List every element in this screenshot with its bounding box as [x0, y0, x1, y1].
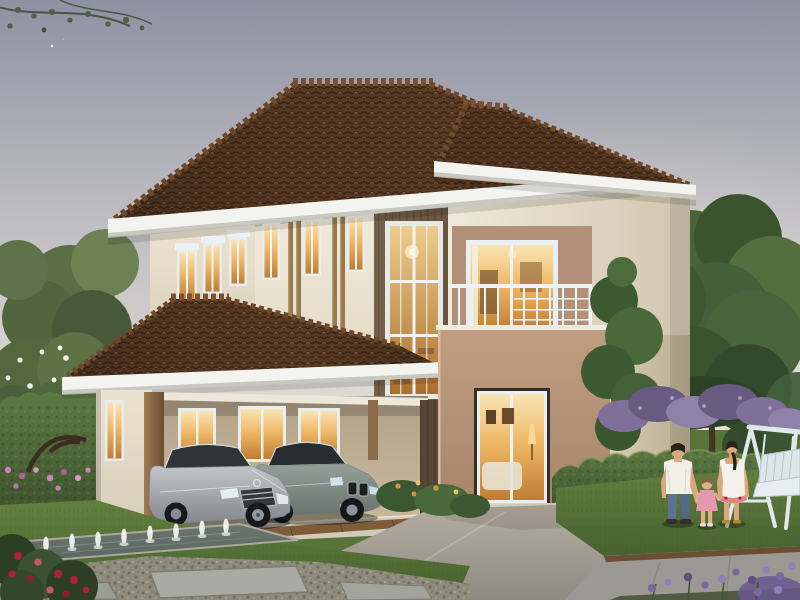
side-window [105, 400, 124, 461]
scene-root [0, 0, 800, 600]
star-small [62, 38, 64, 40]
entry-door [474, 388, 550, 506]
hedge-left [0, 392, 96, 508]
window-upper-left-3 [227, 230, 250, 286]
window-upper-left-1 [175, 243, 199, 302]
window-upper-left-2 [201, 236, 225, 294]
star [51, 45, 53, 47]
stone-slab-1 [150, 566, 308, 598]
house-rendering [0, 0, 800, 600]
carport-inner-post [368, 400, 378, 460]
